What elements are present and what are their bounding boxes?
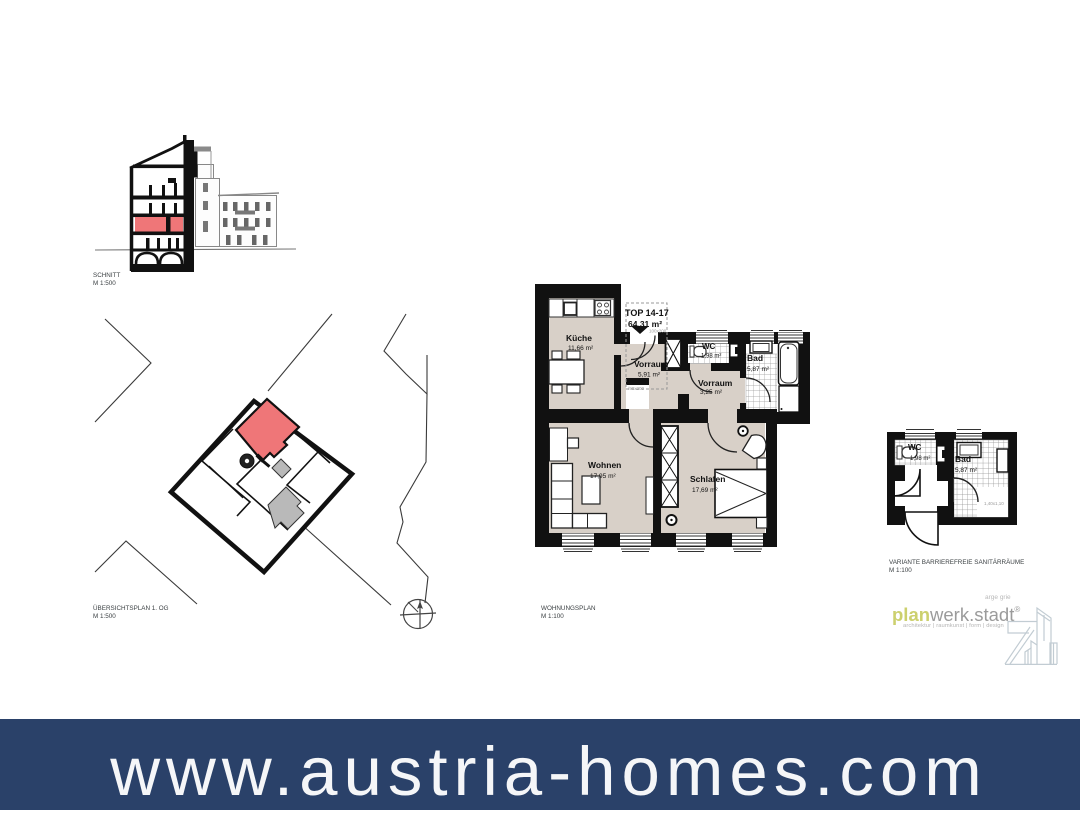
svg-text:64,31 m²: 64,31 m² bbox=[628, 319, 662, 329]
svg-text:Bad: Bad bbox=[747, 353, 763, 363]
svg-text:Vorraum: Vorraum bbox=[698, 378, 733, 388]
svg-text:/90x200: /90x200 bbox=[628, 386, 645, 391]
svg-text:Bad: Bad bbox=[955, 454, 971, 464]
svg-text:Wohnen: Wohnen bbox=[588, 460, 621, 470]
svg-text:5,87 m²: 5,87 m² bbox=[747, 366, 770, 373]
svg-text:TOP 14-17: TOP 14-17 bbox=[625, 308, 669, 318]
svg-text:5,91 m²: 5,91 m² bbox=[638, 372, 661, 379]
svg-text:Schlafen: Schlafen bbox=[690, 474, 725, 484]
svg-text:17,69 m²: 17,69 m² bbox=[692, 487, 718, 494]
svg-text:5,87 m²: 5,87 m² bbox=[955, 467, 978, 474]
svg-text:WC: WC bbox=[908, 443, 922, 452]
svg-text:WC: WC bbox=[702, 342, 716, 351]
svg-text:Vorraum: Vorraum bbox=[634, 359, 669, 369]
svg-text:11,66 m²: 11,66 m² bbox=[568, 345, 594, 352]
svg-text:Küche: Küche bbox=[566, 333, 592, 343]
svg-text:1,98 m²: 1,98 m² bbox=[910, 456, 930, 462]
svg-text:1,40x1,10: 1,40x1,10 bbox=[984, 501, 1004, 506]
svg-text:100x200: 100x200 bbox=[649, 329, 667, 334]
svg-text:3,25 m²: 3,25 m² bbox=[700, 389, 723, 396]
svg-text:1,98 m²: 1,98 m² bbox=[701, 354, 721, 360]
svg-text:17,95 m²: 17,95 m² bbox=[590, 473, 616, 480]
